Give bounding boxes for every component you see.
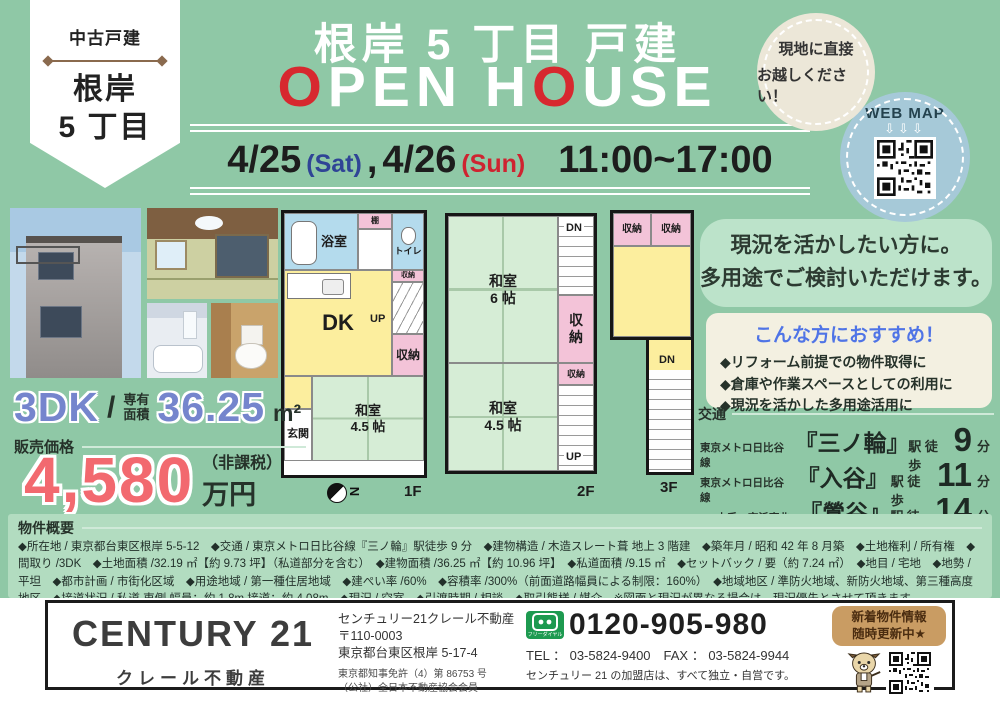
room-washitsu-6: 和室 6 帖 xyxy=(448,216,558,363)
station-name: 『入谷』 xyxy=(797,459,886,493)
open-house-seg1: PEN H xyxy=(328,55,532,119)
visit-line2: お越しください！ xyxy=(757,64,875,106)
station-name: 『三ノ輪』 xyxy=(794,424,903,458)
toilet-icon xyxy=(401,227,416,245)
room-label: 和室 xyxy=(355,403,381,419)
open-house-title: OPEN HOUSE xyxy=(185,56,810,119)
room-washitsu-45: 和室 4.5 帖 xyxy=(312,376,424,461)
ribbon-area-line2: 5 丁目 xyxy=(30,109,180,147)
weekday-sun: (Sun) xyxy=(461,150,525,179)
room-closet: 収納 xyxy=(392,334,424,376)
layout-type: 3DK xyxy=(14,384,99,431)
recommend-item: ◆倉庫や作業スペースとしての利用に xyxy=(720,374,992,396)
room-label: トイレ xyxy=(394,246,421,257)
sink-icon xyxy=(322,279,344,295)
closet-under-stairs: 収納 xyxy=(392,270,424,282)
overview-header: 物件概要 xyxy=(18,518,982,538)
photo-exterior xyxy=(10,208,141,378)
company-full-name: センチュリー21クレール不動産 xyxy=(338,611,526,628)
event-date-bar: 4/25 (Sat) , 4/26 (Sun) 11:00~17:00 xyxy=(190,124,810,195)
room-label: 浴室 xyxy=(321,234,347,250)
visit-line1: 現地に直接 xyxy=(778,38,853,59)
access-routes: 東京メトロ日比谷線 『三ノ輪』 駅 徒歩 9 分 東京メトロ日比谷線 『入谷』 … xyxy=(700,421,992,526)
flyer-page: 中古戸建 根岸 5 丁目 根岸 5 丁目 戸建 OPEN HOUSE 4/25 … xyxy=(0,0,1000,707)
property-overview-panel: 物件概要 ◆所在地 / 東京都台東区根岸 5-5-12 ◆交通 / 東京メトロ日… xyxy=(8,514,992,598)
ribbon-area-line1: 根岸 xyxy=(30,71,180,109)
room-label: 収納 xyxy=(401,272,415,280)
room-closet: 収納 xyxy=(558,295,594,363)
balcony-shape xyxy=(16,246,80,264)
date-2: 4/26 xyxy=(382,139,456,182)
kitchen-counter-icon xyxy=(287,273,351,299)
association-member: （公社）全日本不動産協会会員 xyxy=(338,682,526,697)
open-house-o2: O xyxy=(532,55,582,119)
photo-toilet xyxy=(211,303,278,378)
event-date-row: 4/25 (Sat) , 4/26 (Sun) 11:00~17:00 xyxy=(190,132,810,187)
company-name-jp: クレール不動産 xyxy=(48,664,338,689)
tel-fax: TEL ： 03-5824-9400 FAX ： 03-5824-9944 xyxy=(526,645,826,664)
freedial-number: 0120-905-980 xyxy=(569,608,768,642)
price-tax-note: （非課税） xyxy=(202,449,282,473)
floor-label-3f: 3F xyxy=(660,479,678,496)
area-label: 専有 面積 xyxy=(123,393,149,423)
window-shape xyxy=(40,306,82,338)
area-value: 36.25 xyxy=(157,384,265,431)
dog-mascot-icon xyxy=(845,651,883,693)
recommend-title: こんな方におすすめ！ xyxy=(706,320,992,347)
toilet-tank-shape xyxy=(241,325,263,345)
logo-column: CENTURY 21 クレール不動産 xyxy=(48,603,338,687)
room-closet-small: 収納 xyxy=(558,363,594,385)
ribbon-divider-ornament xyxy=(47,60,163,62)
staircase xyxy=(392,282,424,334)
price-side: （非課税） 万円 xyxy=(202,449,282,512)
room-size: 4.5 帖 xyxy=(351,419,386,435)
up-label: UP xyxy=(564,451,583,463)
room-toilet: トイレ xyxy=(392,213,424,270)
header-rule xyxy=(732,413,994,415)
hallway xyxy=(358,229,392,270)
dn-label: DN xyxy=(564,222,584,234)
room-label: 収納 xyxy=(568,312,584,346)
catch-line2: 多用途でご検討いただけます。 xyxy=(700,263,992,296)
event-time: 11:00~17:00 xyxy=(558,139,772,182)
room-label: 棚 xyxy=(371,216,379,226)
walk-minutes: 9 xyxy=(954,421,972,459)
double-line-top xyxy=(190,124,810,132)
franchise-note: センチュリー 21 の加盟店は、すべて独立・自営です。 xyxy=(526,667,826,683)
rail-line-name: 東京メトロ日比谷線 xyxy=(700,475,792,505)
room-closet: 収納 xyxy=(613,213,651,246)
room-label: 収納 xyxy=(567,369,585,380)
tatami-seam xyxy=(147,278,278,280)
recommend-item: ◆リフォーム前提での物件取得に xyxy=(720,352,992,374)
room-closet: 収納 xyxy=(651,213,691,246)
staircase-down xyxy=(649,370,691,472)
freedial-label: フリーダイヤル xyxy=(528,631,563,638)
header-rule xyxy=(82,527,982,529)
room-label: 和室 xyxy=(489,273,517,290)
postal-code: 〒110-0003 xyxy=(338,628,526,645)
room-size: 4.5 帖 xyxy=(484,417,521,434)
floorplan-3f-stair: DN xyxy=(646,337,694,475)
ceiling-light-shape xyxy=(195,216,223,230)
floorplan-2f: 和室 6 帖 DN 収納 収納 和室 4.5 帖 UP xyxy=(445,213,597,474)
walk-minutes: 11 xyxy=(937,456,972,494)
toilet-bowl-shape xyxy=(235,343,267,369)
company-info-column: センチュリー21クレール不動産 〒110-0003 東京都台東区根岸 5-17-… xyxy=(338,603,526,687)
room-shelf: 棚 xyxy=(358,213,392,229)
area-unit: m² xyxy=(273,400,301,427)
weekday-sat: (Sat) xyxy=(306,150,362,179)
recommend-box: こんな方におすすめ！ ◆リフォーム前提での物件取得に ◆倉庫や作業スペースとして… xyxy=(706,313,992,408)
area-label-line2: 面積 xyxy=(123,408,149,423)
unit-summary: 3DK / 専有 面積 36.25 m² xyxy=(14,384,301,431)
property-category: 中古戸建 xyxy=(30,24,180,49)
price-unit: 万円 xyxy=(202,473,282,512)
visit-direct-circle: 現地に直接 お越しください！ xyxy=(757,13,875,131)
date-1: 4/25 xyxy=(227,139,301,182)
room-label: 和室 xyxy=(489,400,517,417)
photo-tatami-room xyxy=(147,208,278,299)
price-row: 4,580 （非課税） 万円 xyxy=(24,443,282,517)
photo-bathroom xyxy=(147,303,207,378)
room-label: 収納 xyxy=(622,224,642,236)
window-shape xyxy=(155,240,187,270)
room-label: DK xyxy=(322,310,354,336)
listings-qr-code xyxy=(886,649,934,697)
mascot-qr-row xyxy=(845,647,934,697)
open-house-o1: O xyxy=(277,55,327,119)
open-house-seg2: USE xyxy=(582,55,717,119)
room-washitsu-45: 和室 4.5 帖 xyxy=(448,363,558,471)
minutes-unit: 分 xyxy=(977,471,990,490)
century21-logo: CENTURY 21 xyxy=(48,613,338,655)
dn-label: DN xyxy=(657,354,677,366)
license-number: 東京都知事免許（4）第 86753 号 xyxy=(338,668,526,683)
room-loft xyxy=(613,246,691,337)
freedial-icon: フリーダイヤル xyxy=(526,611,564,639)
footer-company-box: CENTURY 21 クレール不動産 センチュリー21クレール不動産 〒110-… xyxy=(45,600,955,690)
area-label-line1: 専有 xyxy=(123,393,149,408)
window-shape xyxy=(215,234,269,278)
floor-label-1f: 1F xyxy=(404,483,422,500)
overview-label: 物件概要 xyxy=(18,518,74,538)
room-label: 収納 xyxy=(661,224,681,236)
floor-label-2f: 2F xyxy=(577,483,595,500)
footer-right-column: 新着物件情報 随時更新中★ xyxy=(826,603,952,687)
new-listings-badge: 新着物件情報 随時更新中★ xyxy=(832,606,946,646)
bathtub-icon xyxy=(291,221,317,265)
rail-line-name: 東京メトロ日比谷線 xyxy=(700,440,789,470)
room-size: 6 帖 xyxy=(490,290,516,307)
minutes-unit: 分 xyxy=(977,436,990,455)
up-label: UP xyxy=(368,313,387,325)
license-info: 東京都知事免許（4）第 86753 号 （公社）全日本不動産協会会員 xyxy=(338,668,526,697)
route-row: 東京メトロ日比谷線 『三ノ輪』 駅 徒歩 9 分 xyxy=(700,421,992,456)
double-line-bottom xyxy=(190,187,810,195)
badge-line2: 随時更新中★ xyxy=(832,626,946,643)
room-label: 収納 xyxy=(396,348,420,362)
company-address: 東京都台東区根岸 5-17-4 xyxy=(338,645,526,662)
badge-line1: 新着物件情報 xyxy=(832,609,946,626)
floorplan-3f-upper: 収納 収納 xyxy=(610,210,694,340)
catch-copy-cloud: 現況を活かしたい方に。 多用途でご検討いただけます。 xyxy=(700,219,992,307)
catch-line1: 現況を活かしたい方に。 xyxy=(731,230,962,263)
compass-icon xyxy=(327,483,347,503)
compass-north-letter: N xyxy=(347,487,362,496)
price-value: 4,580 xyxy=(24,443,194,517)
walk-label: 駅 徒歩 xyxy=(891,471,932,509)
location-ribbon: 中古戸建 根岸 5 丁目 xyxy=(30,0,180,188)
mirror-shape xyxy=(183,311,197,339)
phone-column: フリーダイヤル 0120-905-980 TEL ： 03-5824-9400 … xyxy=(526,603,826,687)
phone-row: フリーダイヤル 0120-905-980 xyxy=(526,608,826,642)
room-bathroom: 浴室 xyxy=(284,213,358,270)
date-comma: , xyxy=(367,139,378,182)
phone-glyph xyxy=(532,613,558,631)
visit-direct-text: 現地に直接 お越しください！ xyxy=(757,13,875,131)
bathtub-shape xyxy=(153,345,203,373)
slash: / xyxy=(107,391,115,425)
